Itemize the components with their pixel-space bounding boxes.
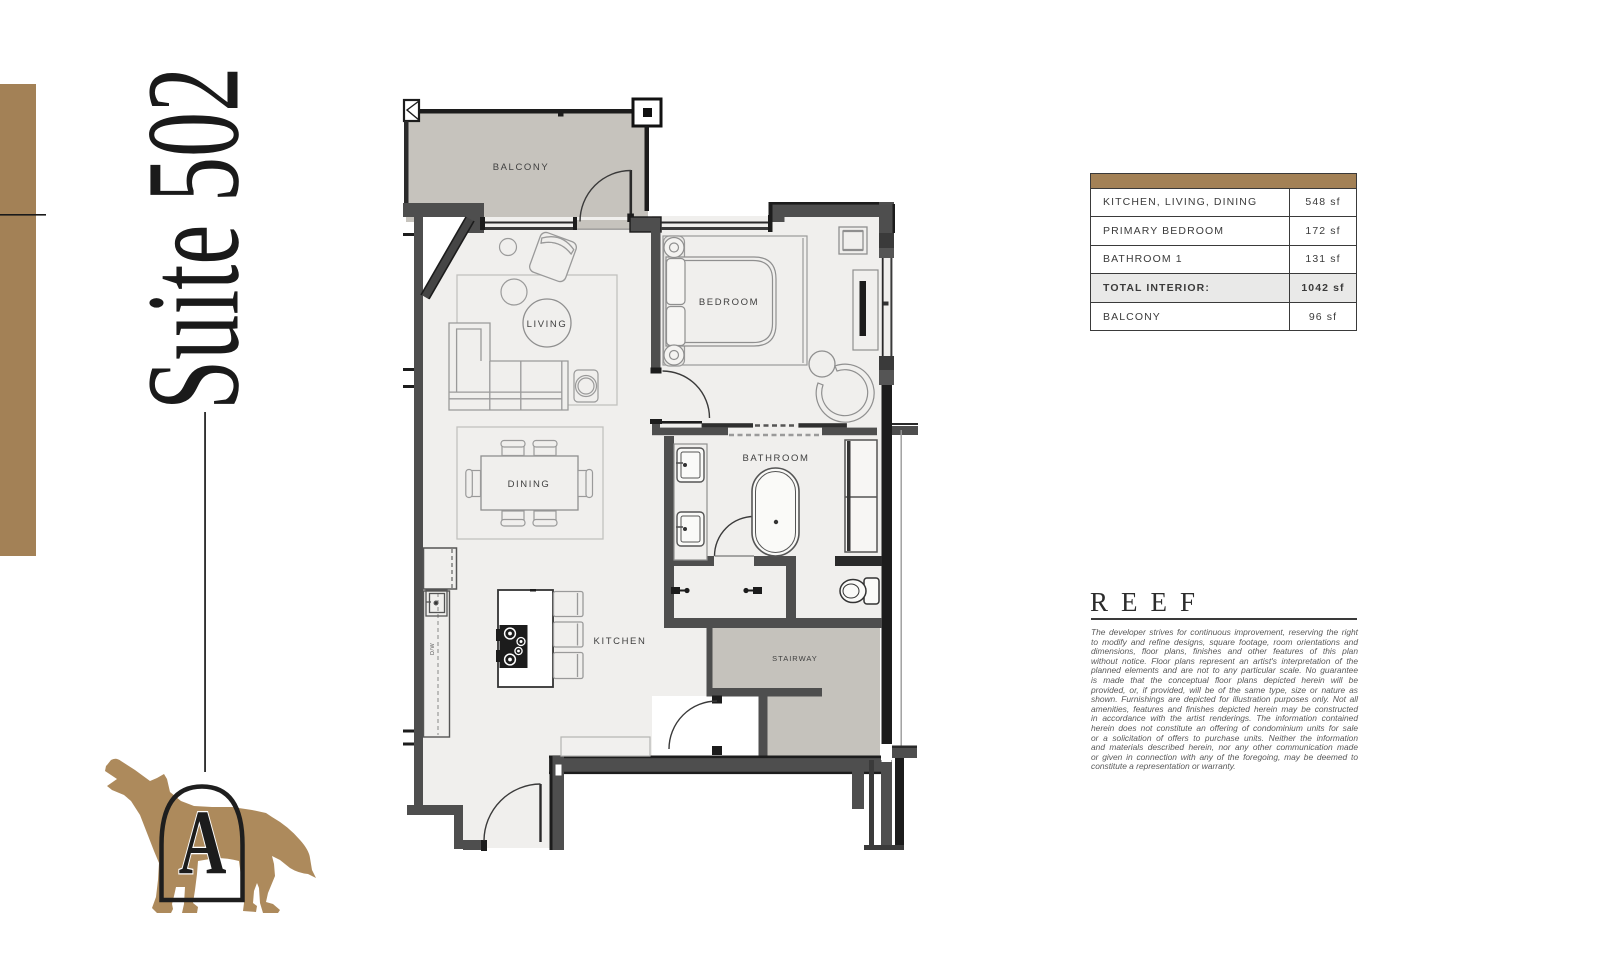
svg-text:BALCONY: BALCONY	[493, 162, 550, 173]
svg-text:DINING: DINING	[508, 479, 551, 490]
svg-text:BATHROOM: BATHROOM	[743, 453, 810, 464]
svg-text:KITCHEN: KITCHEN	[594, 636, 647, 647]
svg-text:BEDROOM: BEDROOM	[699, 297, 759, 308]
svg-text:D/W: D/W	[430, 643, 436, 656]
svg-text:LIVING: LIVING	[527, 319, 568, 330]
svg-text:STAIRWAY: STAIRWAY	[772, 654, 818, 663]
svg-text:A: A	[179, 793, 227, 894]
